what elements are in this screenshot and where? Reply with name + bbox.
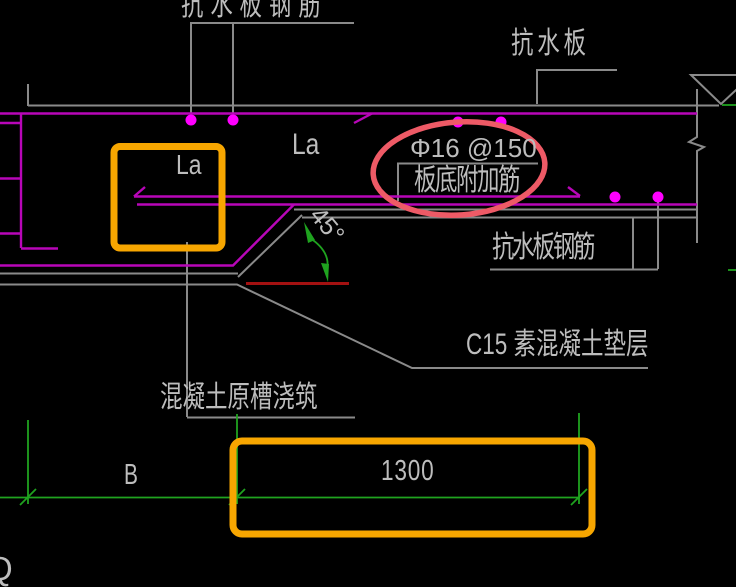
top-rebar-label: 抗水板钢筋 xyxy=(181,0,327,21)
top-rebar-bend xyxy=(354,114,372,124)
additional-rebar-hook-right xyxy=(568,187,580,196)
rebar-spec-name-label: 板底附加筋 xyxy=(414,166,519,196)
angle-arrow-bottom xyxy=(321,263,329,282)
right-rebar-label: 抗水板钢筋 xyxy=(492,233,593,263)
rebar-dot xyxy=(653,192,664,203)
trench-label: 混凝土原槽浇筑 xyxy=(160,383,318,413)
rebar-dot xyxy=(610,192,621,203)
cushion-label: C15 素混凝土垫层 xyxy=(466,330,649,360)
rebar-spec-label: Φ16 @150 xyxy=(410,135,537,161)
anchorage-label-right: La xyxy=(292,130,319,160)
slab-label-leader xyxy=(537,70,617,104)
rebar-dot xyxy=(186,115,197,126)
step-rebar xyxy=(0,205,294,266)
dimension-value: 1300 xyxy=(381,457,434,486)
anchorage-label-left: La xyxy=(176,151,202,179)
additional-rebar-hook-left xyxy=(134,187,145,197)
rebar-dot xyxy=(228,115,239,126)
corner-letter: Q xyxy=(0,552,13,585)
slab-label: 抗水板 xyxy=(511,29,590,59)
dimension-lines xyxy=(0,105,736,505)
dimension-span-label: B xyxy=(124,461,138,490)
break-line-symbol xyxy=(689,89,704,243)
drawing-canvas xyxy=(0,0,736,584)
step-slope-line xyxy=(238,215,302,277)
cad-detail-screenshot: { "drawing": { "labels": { "top_rebar": … xyxy=(0,0,736,584)
